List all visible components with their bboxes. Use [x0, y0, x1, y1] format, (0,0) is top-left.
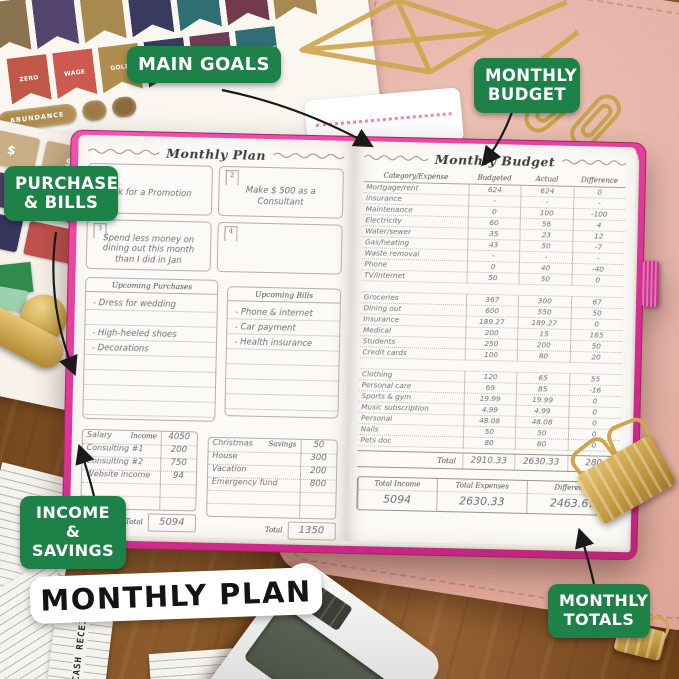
summary-column: Total Income 5094 — [357, 477, 437, 511]
purchase-item: - Decorations — [92, 341, 210, 359]
income-total-value: 5094 — [148, 513, 196, 532]
callout-monthly-budget: MONTHLY BUDGET — [474, 58, 580, 113]
income-row-value — [159, 483, 195, 498]
savings-row-label: House — [212, 450, 237, 460]
summary-value: 5094 — [358, 490, 436, 511]
budget-table-body: Mortgage/rent 624 624 0 Insurance - - - — [357, 182, 625, 452]
goal-number-tag: 2 — [225, 170, 238, 185]
goal-number-tag: 4 — [224, 226, 237, 241]
flag-sticker — [222, 0, 270, 26]
income-row-value — [159, 497, 195, 511]
wavy-line — [273, 151, 344, 161]
savings-total-value: 1350 — [287, 522, 335, 541]
open-pages: Monthly Plan 1 Ask for a Promotion — [70, 135, 637, 548]
upcoming-purchases-box: Upcoming Purchases - Dress for wedding- … — [82, 277, 219, 422]
flag-sticker: ZERO — [6, 54, 51, 105]
callout-monthly-totals: MONTHLY TOTALS — [548, 584, 650, 638]
summary-column: Total Expenses 2630.33 — [436, 479, 527, 513]
bill-item: - Health insurance — [234, 335, 332, 352]
budget-total-label: Total — [357, 454, 462, 465]
income-row-label: Salary — [87, 429, 112, 439]
savings-total-label: Total — [265, 526, 283, 534]
photo-scene: ZEROWAGEGOLDTHE MINDSTOPYOUR TIME ABUNDA… — [0, 0, 679, 679]
pen-loop — [642, 261, 659, 307]
upcoming-bills-box: Upcoming Bills - Phone & internet- Car p… — [225, 286, 341, 419]
budget-actual: 80 — [515, 439, 568, 451]
purchase-item: - Dress for wedding — [93, 296, 211, 314]
callout-purchases-bills: PURCHASES & BILLS — [4, 166, 118, 221]
plan-page-title: Monthly Plan — [166, 145, 266, 162]
income-row-label: Consulting #2 — [86, 455, 143, 465]
savings-row — [207, 503, 335, 519]
savings-row-value — [299, 505, 335, 519]
planner-notebook: Monthly Plan 1 Ask for a Promotion — [61, 130, 646, 561]
budget-budgeted: 80 — [462, 437, 515, 449]
budget-category: Pets doc — [357, 435, 462, 448]
wavy-line — [88, 147, 159, 157]
savings-header: Savings — [269, 440, 297, 449]
oval-sticker — [111, 96, 137, 119]
col-difference: Difference — [573, 175, 626, 184]
budget-total-budgeted: 2910.33 — [462, 453, 515, 469]
pink-cover: Monthly Plan 1 Ask for a Promotion — [61, 130, 646, 561]
income-total-label: Total — [125, 518, 143, 526]
goal-box: 3 Spend less money on dining out this mo… — [86, 219, 212, 272]
flag-sticker — [126, 0, 174, 37]
col-actual: Actual — [521, 174, 574, 183]
col-category: Category/Expense — [363, 171, 468, 181]
income-row-label: Website income — [86, 468, 150, 478]
savings-row-label: Vacation — [212, 463, 247, 473]
savings-row-label: Christmas — [213, 437, 254, 447]
upcoming-purchases-list: - Dress for wedding- High-heeled shoes- … — [83, 292, 217, 421]
savings-row-label: Emergency fund — [212, 476, 278, 486]
goal-box: 2 Make $ 500 as a Consultant — [218, 166, 344, 219]
flag-sticker — [79, 0, 127, 43]
savings-section: ChristmasSavings 50 House 300 — [205, 437, 337, 541]
summary-value: 2630.33 — [437, 492, 527, 513]
savings-row-value — [299, 491, 335, 506]
budget-page-title: Monthly Budget — [435, 151, 556, 169]
goal-text: Spend less money on dining out this mont… — [92, 233, 206, 267]
col-budgeted: Budgeted — [468, 173, 521, 182]
oval-sticker — [81, 99, 107, 122]
callout-main-goals: MAIN GOALS — [127, 46, 281, 83]
wavy-line — [562, 158, 626, 167]
upcoming-bills-list: - Phone & internet- Car payment- Health … — [226, 301, 340, 417]
budget-total-actual: 2630.33 — [514, 455, 567, 471]
income-header: Income — [130, 431, 156, 440]
flag-sticker — [174, 0, 222, 31]
flag-sticker — [0, 0, 32, 55]
goal-box: 4 — [216, 222, 342, 275]
flag-sticker: WAGE — [52, 48, 97, 99]
goal-text: Make $ 500 as a Consultant — [224, 185, 337, 209]
wavy-line — [364, 153, 428, 162]
callout-income-savings: INCOME & SAVINGS — [20, 496, 126, 569]
flag-sticker — [31, 0, 79, 49]
income-row-label: Consulting #1 — [87, 442, 144, 452]
